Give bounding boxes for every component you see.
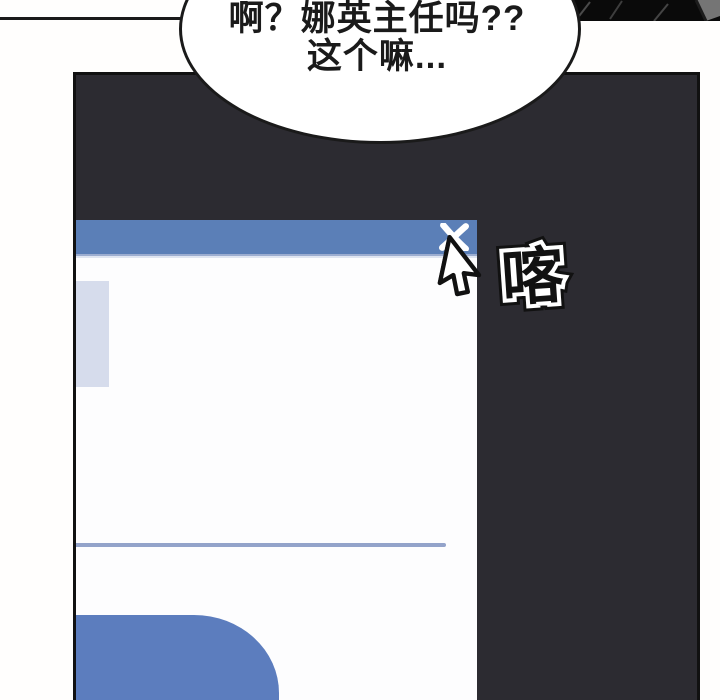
speech-line-2: 这个嘛...	[179, 38, 575, 76]
speech-line-1: 啊？娜英主任吗??	[179, 0, 575, 38]
dialog-divider-line	[76, 543, 446, 547]
sfx-click-text: 喀 喀 喀	[491, 236, 607, 333]
speech-bubble-text: 啊？娜英主任吗?? 这个嘛...	[179, 0, 575, 76]
dialog-window	[76, 220, 477, 700]
previous-panel-artwork	[556, 0, 720, 21]
dialog-titlebar[interactable]	[76, 220, 477, 254]
dialog-blue-button-shape[interactable]	[76, 615, 279, 700]
comic-panel: 啊？娜英主任吗?? 这个嘛... 喀 喀 喀	[0, 0, 720, 700]
dialog-content-block	[76, 281, 109, 387]
titlebar-edge-light	[76, 256, 477, 258]
sfx-core-glyph: 喀	[499, 241, 566, 315]
